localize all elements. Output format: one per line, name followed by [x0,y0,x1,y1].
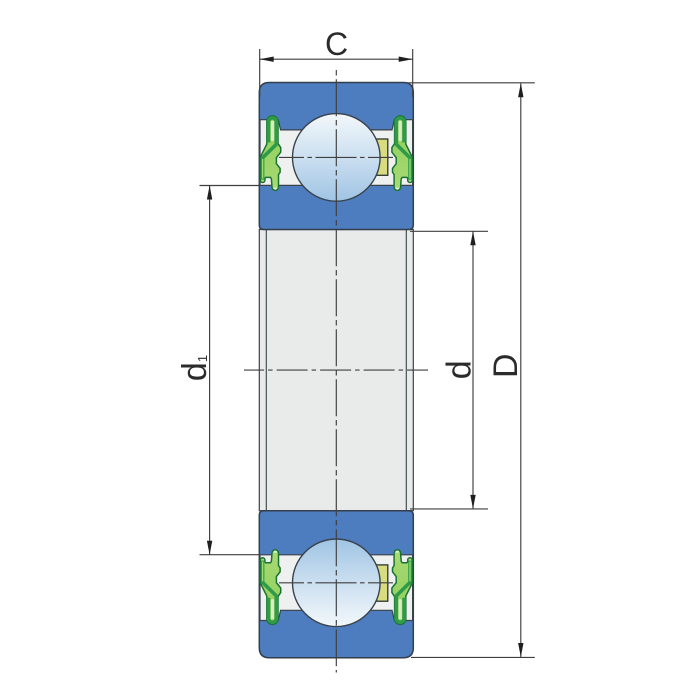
svg-text:D: D [487,353,525,378]
svg-text:d: d [440,360,478,379]
svg-text:C: C [325,26,348,62]
